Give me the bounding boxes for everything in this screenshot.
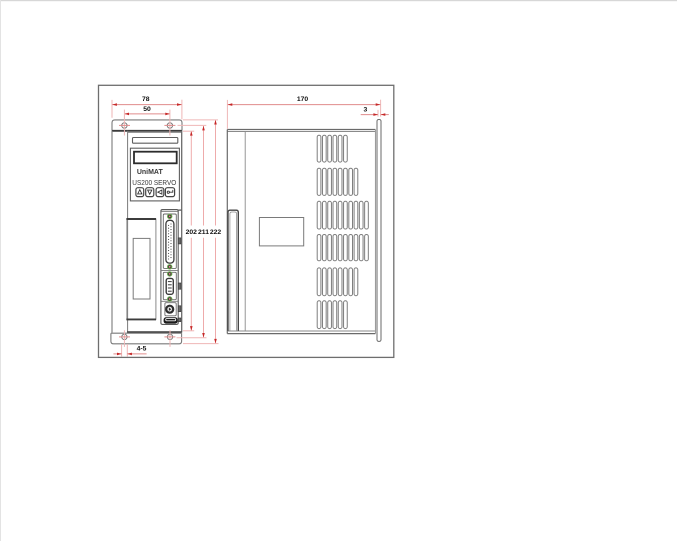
svg-text:222: 222	[210, 229, 222, 236]
svg-text:202: 202	[186, 229, 198, 236]
svg-text:211: 211	[198, 229, 209, 236]
svg-text:3: 3	[364, 106, 368, 113]
svg-text:US200 SERVO: US200 SERVO	[132, 180, 177, 187]
svg-text:4-5: 4-5	[137, 346, 147, 353]
svg-text:170: 170	[297, 96, 309, 103]
svg-text:UniMAT: UniMAT	[137, 169, 164, 176]
svg-text:50: 50	[143, 106, 151, 113]
svg-text:78: 78	[142, 96, 150, 103]
